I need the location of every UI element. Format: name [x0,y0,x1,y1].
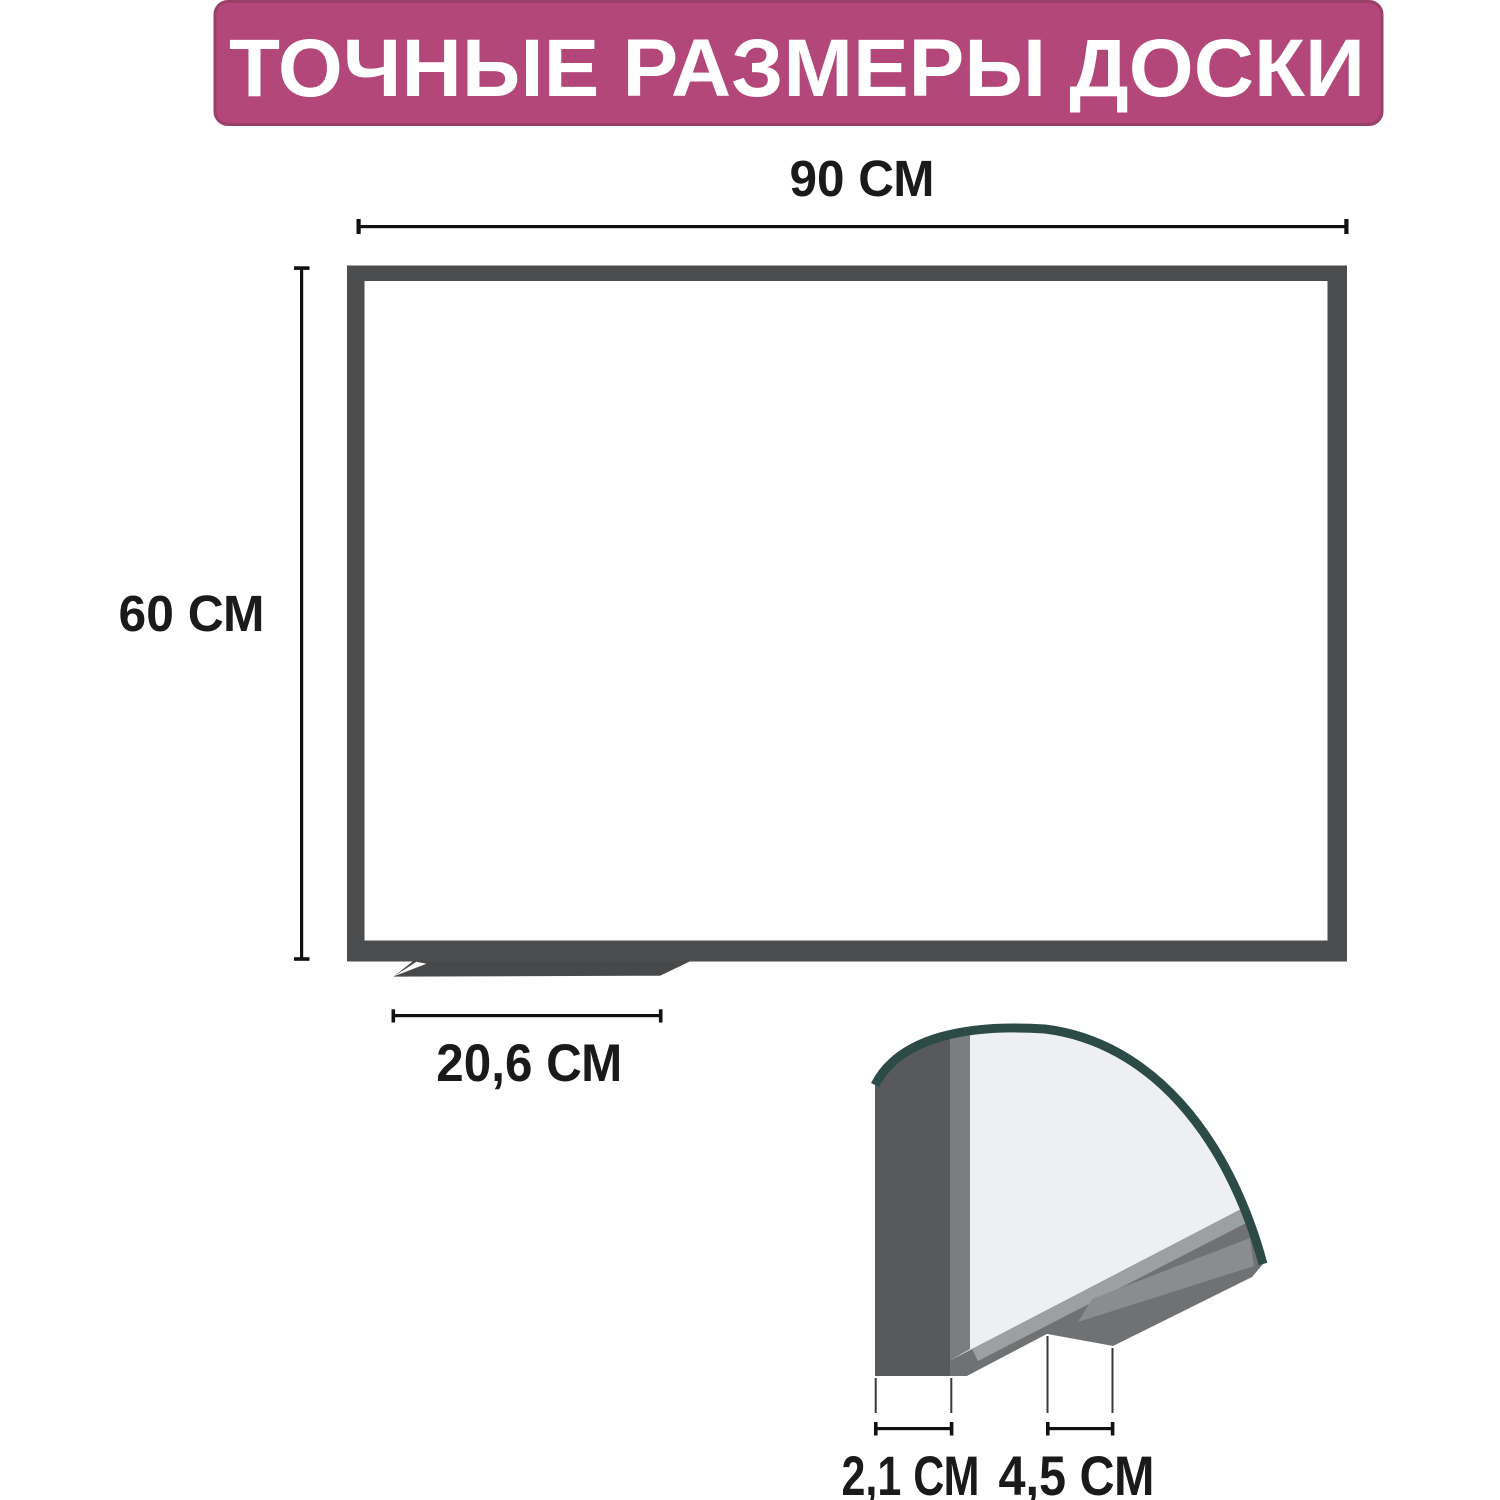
svg-text:60 СМ: 60 СМ [119,585,265,642]
svg-text:2,1 СМ: 2,1 СМ [842,1444,980,1500]
svg-text:4,5 СМ: 4,5 СМ [999,1444,1155,1500]
svg-text:20,6 СМ: 20,6 СМ [436,1034,622,1093]
svg-text:90 СМ: 90 СМ [790,150,935,207]
svg-text:ТОЧНЫЕ РАЗМЕРЫ ДОСКИ: ТОЧНЫЕ РАЗМЕРЫ ДОСКИ [229,23,1365,114]
